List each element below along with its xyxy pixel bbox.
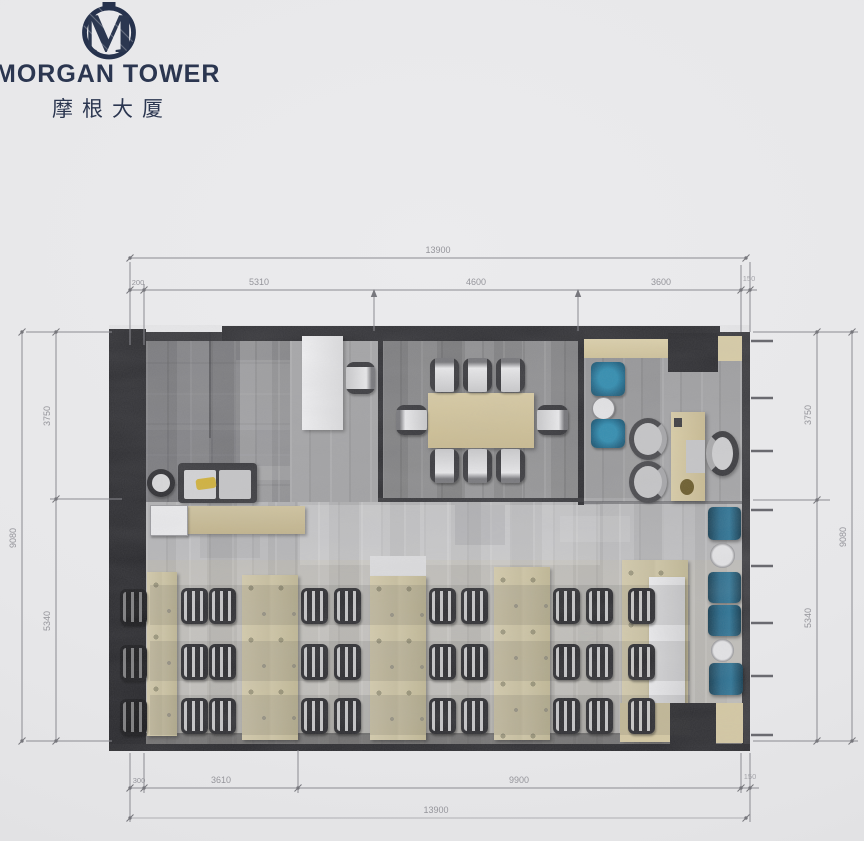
svg-text:150: 150 xyxy=(743,274,756,283)
svg-text:3750: 3750 xyxy=(803,405,813,425)
svg-text:200: 200 xyxy=(132,278,145,287)
svg-text:13900: 13900 xyxy=(425,245,450,255)
svg-text:13900: 13900 xyxy=(423,805,448,815)
svg-text:9080: 9080 xyxy=(8,528,18,548)
svg-text:150: 150 xyxy=(744,772,757,781)
svg-text:5340: 5340 xyxy=(42,611,52,631)
svg-text:5340: 5340 xyxy=(803,608,813,628)
svg-text:3600: 3600 xyxy=(651,277,671,287)
svg-text:300: 300 xyxy=(133,776,146,785)
svg-text:3610: 3610 xyxy=(211,775,231,785)
svg-text:5310: 5310 xyxy=(249,277,269,287)
svg-text:4600: 4600 xyxy=(466,277,486,287)
svg-text:3750: 3750 xyxy=(42,406,52,426)
svg-text:9080: 9080 xyxy=(838,527,848,547)
svg-text:9900: 9900 xyxy=(509,775,529,785)
